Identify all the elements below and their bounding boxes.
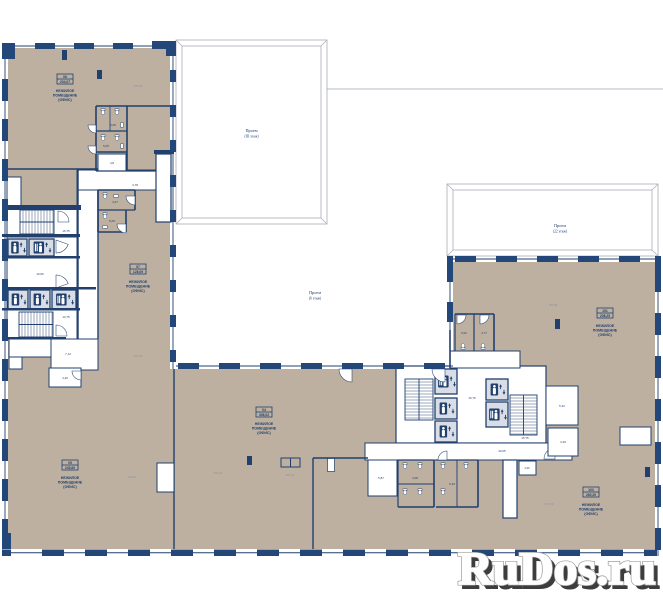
svg-text:101: 101	[602, 309, 608, 313]
svg-text:(ОФИС): (ОФИС)	[63, 485, 77, 489]
svg-text:ПОМЕЩЕНИЕ: ПОМЕЩЕНИЕ	[579, 508, 604, 512]
svg-text:128,09: 128,09	[133, 270, 143, 274]
svg-text:Проем: Проем	[554, 223, 566, 228]
svg-text:204,07: 204,07	[60, 80, 70, 84]
svg-text:15,75: 15,75	[62, 229, 70, 233]
svg-text:16,76: 16,76	[468, 396, 476, 400]
svg-text:13,75: 13,75	[62, 315, 70, 319]
svg-text:306,02: 306,02	[259, 413, 269, 417]
svg-text:7,12: 7,12	[65, 352, 71, 356]
svg-text:163,26: 163,26	[134, 84, 143, 88]
svg-text:307,22: 307,22	[286, 473, 295, 477]
svg-text:157,66: 157,66	[549, 303, 558, 307]
svg-text:6,05: 6,05	[110, 123, 116, 127]
svg-text:40,05: 40,05	[498, 449, 506, 453]
svg-text:5,02: 5,02	[461, 331, 467, 335]
svg-text:Проем: Проем	[309, 290, 321, 295]
svg-text:(ОФИС): (ОФИС)	[584, 512, 598, 516]
svg-text:245,60: 245,60	[128, 475, 137, 479]
svg-text:277,09: 277,09	[545, 502, 554, 506]
svg-text:(ОФИС): (ОФИС)	[598, 333, 612, 337]
svg-text:4,78: 4,78	[132, 183, 138, 187]
svg-text:(ОФИС): (ОФИС)	[131, 289, 145, 293]
svg-text:(6 этаж): (6 этаж)	[309, 297, 322, 301]
svg-text:4,29: 4,29	[560, 440, 566, 444]
svg-text:(ОФИС): (ОФИС)	[58, 98, 72, 102]
svg-text:5,05: 5,05	[109, 219, 115, 223]
svg-text:4,77: 4,77	[481, 331, 487, 335]
svg-text:ПОМЕЩЕНИЕ: ПОМЕЩЕНИЕ	[58, 481, 83, 485]
svg-text:ПОМЕЩЕНИЕ: ПОМЕЩЕНИЕ	[593, 329, 618, 333]
svg-text:16,66: 16,66	[36, 272, 44, 276]
svg-text:НЕЖИЛОЕ: НЕЖИЛОЕ	[582, 503, 601, 507]
svg-text:5,05: 5,05	[103, 144, 109, 148]
svg-text:245,60: 245,60	[65, 466, 75, 470]
svg-text:(22 этаж): (22 этаж)	[553, 230, 568, 234]
svg-text:103: 103	[588, 488, 594, 492]
svg-text:06: 06	[63, 75, 67, 79]
svg-text:4,8: 4,8	[110, 161, 114, 165]
svg-text:5,32: 5,32	[559, 404, 565, 408]
svg-text:НЕЖИЛОЕ: НЕЖИЛОЕ	[61, 476, 80, 480]
svg-text:297,13: 297,13	[214, 471, 223, 475]
svg-text:Проем: Проем	[245, 128, 257, 133]
svg-text:4,08: 4,08	[412, 476, 418, 480]
svg-text:208,25: 208,25	[600, 314, 610, 318]
svg-text:НЕЖИЛОЕ: НЕЖИЛОЕ	[129, 280, 148, 284]
svg-text:04: 04	[262, 408, 266, 412]
svg-text:НЕЖИЛОЕ: НЕЖИЛОЕ	[255, 422, 274, 426]
svg-text:2,66: 2,66	[524, 466, 530, 470]
svg-text:ПОМЕЩЕНИЕ: ПОМЕЩЕНИЕ	[53, 94, 78, 98]
svg-text:260,20: 260,20	[586, 493, 596, 497]
svg-text:(III этаж): (III этаж)	[244, 135, 259, 139]
svg-text:4,07: 4,07	[112, 200, 118, 204]
svg-text:ПОМЕЩЕНИЕ: ПОМЕЩЕНИЕ	[252, 427, 277, 431]
svg-text:5,87: 5,87	[378, 476, 384, 480]
svg-text:07: 07	[136, 265, 140, 269]
svg-text:15,75: 15,75	[521, 436, 529, 440]
svg-text:НЕЖИЛОЕ: НЕЖИЛОЕ	[56, 89, 75, 93]
svg-text:4,20: 4,20	[62, 376, 68, 380]
svg-text:ПОМЕЩЕНИЕ: ПОМЕЩЕНИЕ	[126, 285, 151, 289]
svg-text:(ОФИС): (ОФИС)	[257, 431, 271, 435]
svg-text:5,49: 5,49	[449, 482, 455, 486]
svg-text:RuDos.ru: RuDos.ru	[458, 543, 656, 595]
svg-text:157,44: 157,44	[134, 354, 143, 358]
svg-text:05: 05	[68, 461, 72, 465]
svg-text:НЕЖИЛОЕ: НЕЖИЛОЕ	[596, 324, 615, 328]
